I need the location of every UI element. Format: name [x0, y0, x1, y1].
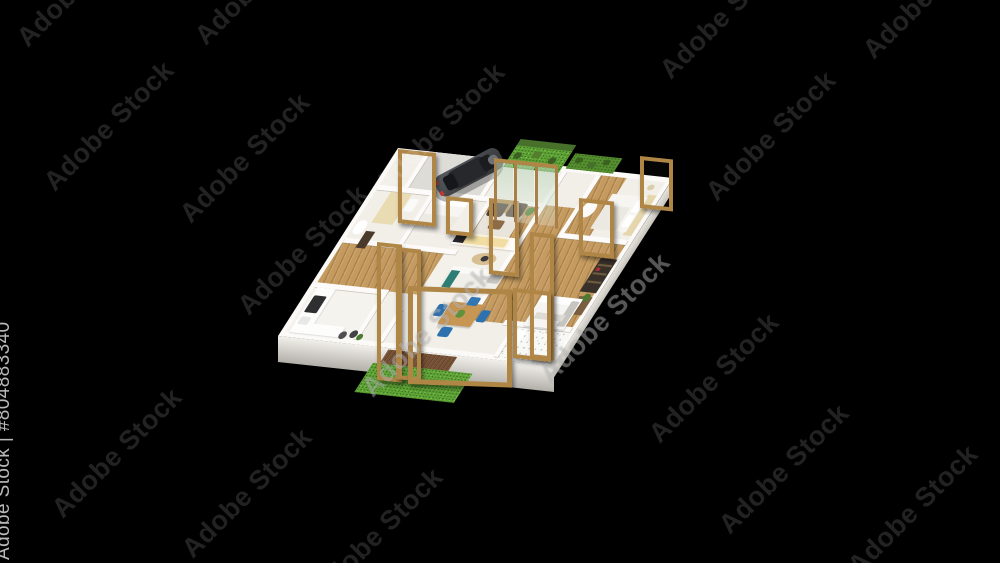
adobe-stock-watermark: Adobe Stock — [176, 422, 319, 563]
adobe-stock-watermark: Adobe Stock — [654, 0, 797, 85]
adobe-stock-watermark: Adobe Stock — [842, 439, 985, 563]
stock-photo-canvas: Adobe StockAdobe StockAdobe StockAdobe S… — [0, 0, 1000, 563]
adobe-stock-watermark: Adobe Stock — [232, 179, 375, 322]
adobe-stock-watermark: Adobe Stock — [700, 65, 843, 208]
adobe-stock-watermark: Adobe Stock — [356, 261, 499, 404]
watermark-layer: Adobe StockAdobe StockAdobe StockAdobe S… — [0, 0, 1000, 563]
adobe-stock-watermark: Adobe Stock — [857, 0, 1000, 65]
adobe-stock-watermark: Adobe Stock — [174, 87, 317, 230]
adobe-stock-watermark: Adobe Stock — [46, 382, 189, 525]
adobe-stock-watermark: Adobe Stock — [38, 55, 181, 198]
adobe-stock-watermark: Adobe Stock — [369, 57, 512, 200]
adobe-stock-watermark: Adobe Stock — [643, 307, 786, 450]
adobe-stock-watermark: Adobe Stock — [713, 398, 856, 541]
adobe-stock-watermark: Adobe Stock — [189, 0, 332, 51]
adobe-stock-watermark: Adobe Stock — [534, 247, 677, 390]
adobe-stock-watermark: Adobe Stock — [11, 0, 154, 53]
adobe-stock-watermark: Adobe Stock — [307, 462, 450, 563]
stock-id-banner: Adobe Stock | #804883340 — [0, 322, 15, 561]
